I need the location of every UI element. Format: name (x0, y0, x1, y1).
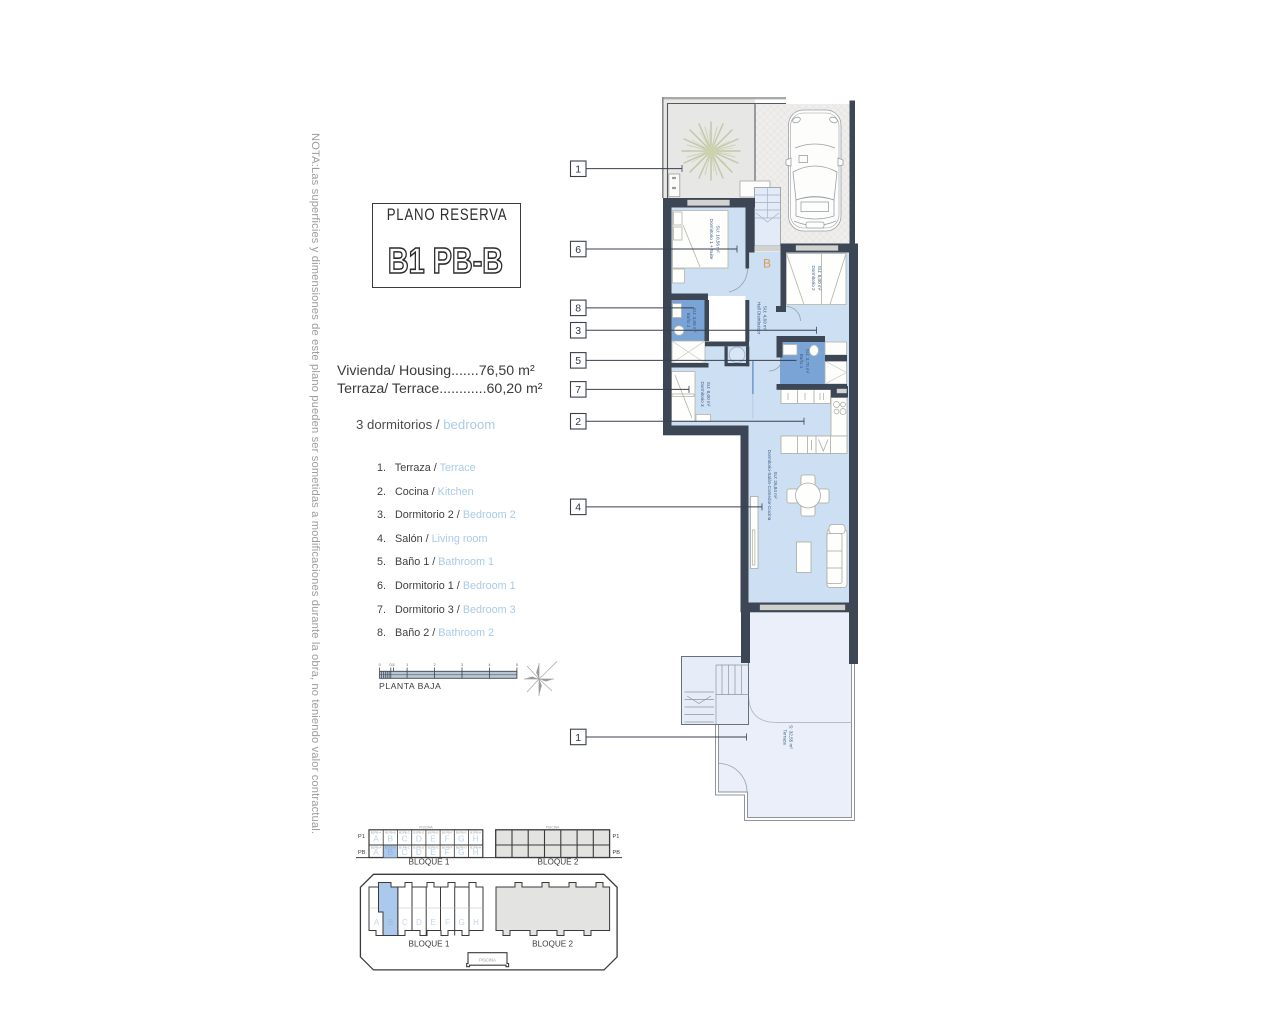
svg-text:C: C (402, 918, 408, 927)
svg-text:PISCINA: PISCINA (419, 826, 433, 830)
svg-text:4: 4 (489, 663, 491, 667)
svg-text:B: B (388, 918, 393, 927)
svg-text:B1PB-B: B1PB-B (385, 831, 396, 835)
svg-text:B1PB-G: B1PB-G (456, 831, 468, 835)
svg-text:B1PB-D: B1PB-D (413, 831, 425, 835)
svg-text:Baño 1: Baño 1 (799, 354, 804, 369)
svg-text:E: E (430, 834, 436, 844)
svg-text:BLOQUE 1: BLOQUE 1 (409, 858, 450, 867)
svg-text:7: 7 (575, 384, 581, 396)
svg-text:B1PB-H: B1PB-H (470, 831, 481, 835)
svg-text:2: 2 (575, 416, 581, 428)
svg-text:G: G (458, 834, 465, 844)
svg-text:H: H (473, 834, 479, 844)
svg-text:B1PB-F: B1PB-F (442, 846, 453, 850)
svg-text:6: 6 (575, 244, 581, 256)
svg-text:8: 8 (575, 303, 581, 315)
svg-text:4: 4 (575, 502, 581, 514)
svg-text:S: 32,55 m²: S: 32,55 m² (789, 725, 794, 749)
svg-text:B1PB-A: B1PB-A (371, 831, 382, 835)
svg-text:Dormitorio 1 + Suite: Dormitorio 1 + Suite (709, 219, 714, 260)
svg-text:SU: 10,56 m²: SU: 10,56 m² (716, 225, 721, 253)
svg-text:C: C (401, 834, 407, 844)
svg-text:D: D (416, 918, 422, 927)
svg-text:SU: 3,70 m²: SU: 3,70 m² (805, 349, 810, 374)
svg-text:F: F (445, 834, 450, 844)
svg-text:G: G (459, 918, 465, 927)
svg-text:1: 1 (406, 663, 408, 667)
svg-text:Dormitorio 2: Dormitorio 2 (811, 265, 816, 290)
svg-text:Dormitorio 3: Dormitorio 3 (700, 381, 705, 406)
svg-text:D: D (416, 834, 422, 844)
svg-text:0: 0 (379, 663, 381, 667)
svg-text:B1PB-G: B1PB-G (456, 846, 468, 850)
svg-text:BLOQUE 2: BLOQUE 2 (538, 858, 579, 867)
svg-text:Dormitorio-Salón-Comedor-Cocin: Dormitorio-Salón-Comedor-Cocina (767, 450, 772, 521)
svg-text:B1PB-H: B1PB-H (470, 846, 481, 850)
svg-text:5: 5 (575, 355, 581, 367)
svg-text:H: H (473, 918, 479, 927)
svg-text:SU: 8,00 m²: SU: 8,00 m² (706, 382, 711, 407)
svg-text:B1PB-C: B1PB-C (399, 846, 411, 850)
svg-text:SU: 3,06 m²: SU: 3,06 m² (692, 308, 697, 333)
svg-text:SU: 4,69 m²: SU: 4,69 m² (763, 306, 768, 331)
svg-text:A: A (374, 918, 380, 927)
svg-text:B1PB-A: B1PB-A (371, 846, 382, 850)
svg-text:B: B (763, 257, 771, 271)
svg-text:E: E (431, 918, 436, 927)
svg-text:Hall Distribuidor: Hall Distribuidor (757, 302, 762, 335)
svg-text:B1PB-B: B1PB-B (385, 846, 396, 850)
svg-text:2: 2 (434, 663, 436, 667)
svg-text:0,5: 0,5 (390, 663, 395, 667)
svg-text:B1PB-F: B1PB-F (442, 831, 453, 835)
svg-text:B1PB-D: B1PB-D (413, 846, 425, 850)
svg-text:5: 5 (516, 663, 518, 667)
svg-text:B1PB-E: B1PB-E (428, 846, 439, 850)
svg-text:P1: P1 (613, 834, 620, 840)
svg-text:SU: 8,00 m²: SU: 8,00 m² (817, 266, 822, 291)
svg-text:PB: PB (358, 850, 366, 856)
svg-text:Terraza: Terraza (783, 729, 788, 745)
svg-text:Baño 2: Baño 2 (686, 313, 691, 328)
svg-text:B: B (388, 834, 394, 844)
svg-text:B1PB-E: B1PB-E (428, 831, 439, 835)
svg-text:BLOQUE 1: BLOQUE 1 (409, 940, 450, 949)
svg-text:3: 3 (575, 325, 581, 337)
svg-text:B1PB-C: B1PB-C (399, 831, 411, 835)
svg-text:1: 1 (575, 164, 581, 176)
svg-text:PISCINA: PISCINA (479, 958, 496, 963)
svg-text:1: 1 (575, 732, 581, 744)
svg-text:SU: 26,84 m²: SU: 26,84 m² (773, 471, 778, 499)
svg-text:3: 3 (461, 663, 463, 667)
svg-text:PB: PB (613, 850, 621, 856)
svg-text:F: F (445, 918, 450, 927)
svg-text:BLOQUE 2: BLOQUE 2 (532, 940, 573, 949)
svg-text:P1: P1 (358, 834, 365, 840)
svg-text:A: A (373, 834, 379, 844)
svg-text:PISCINA: PISCINA (546, 826, 560, 830)
